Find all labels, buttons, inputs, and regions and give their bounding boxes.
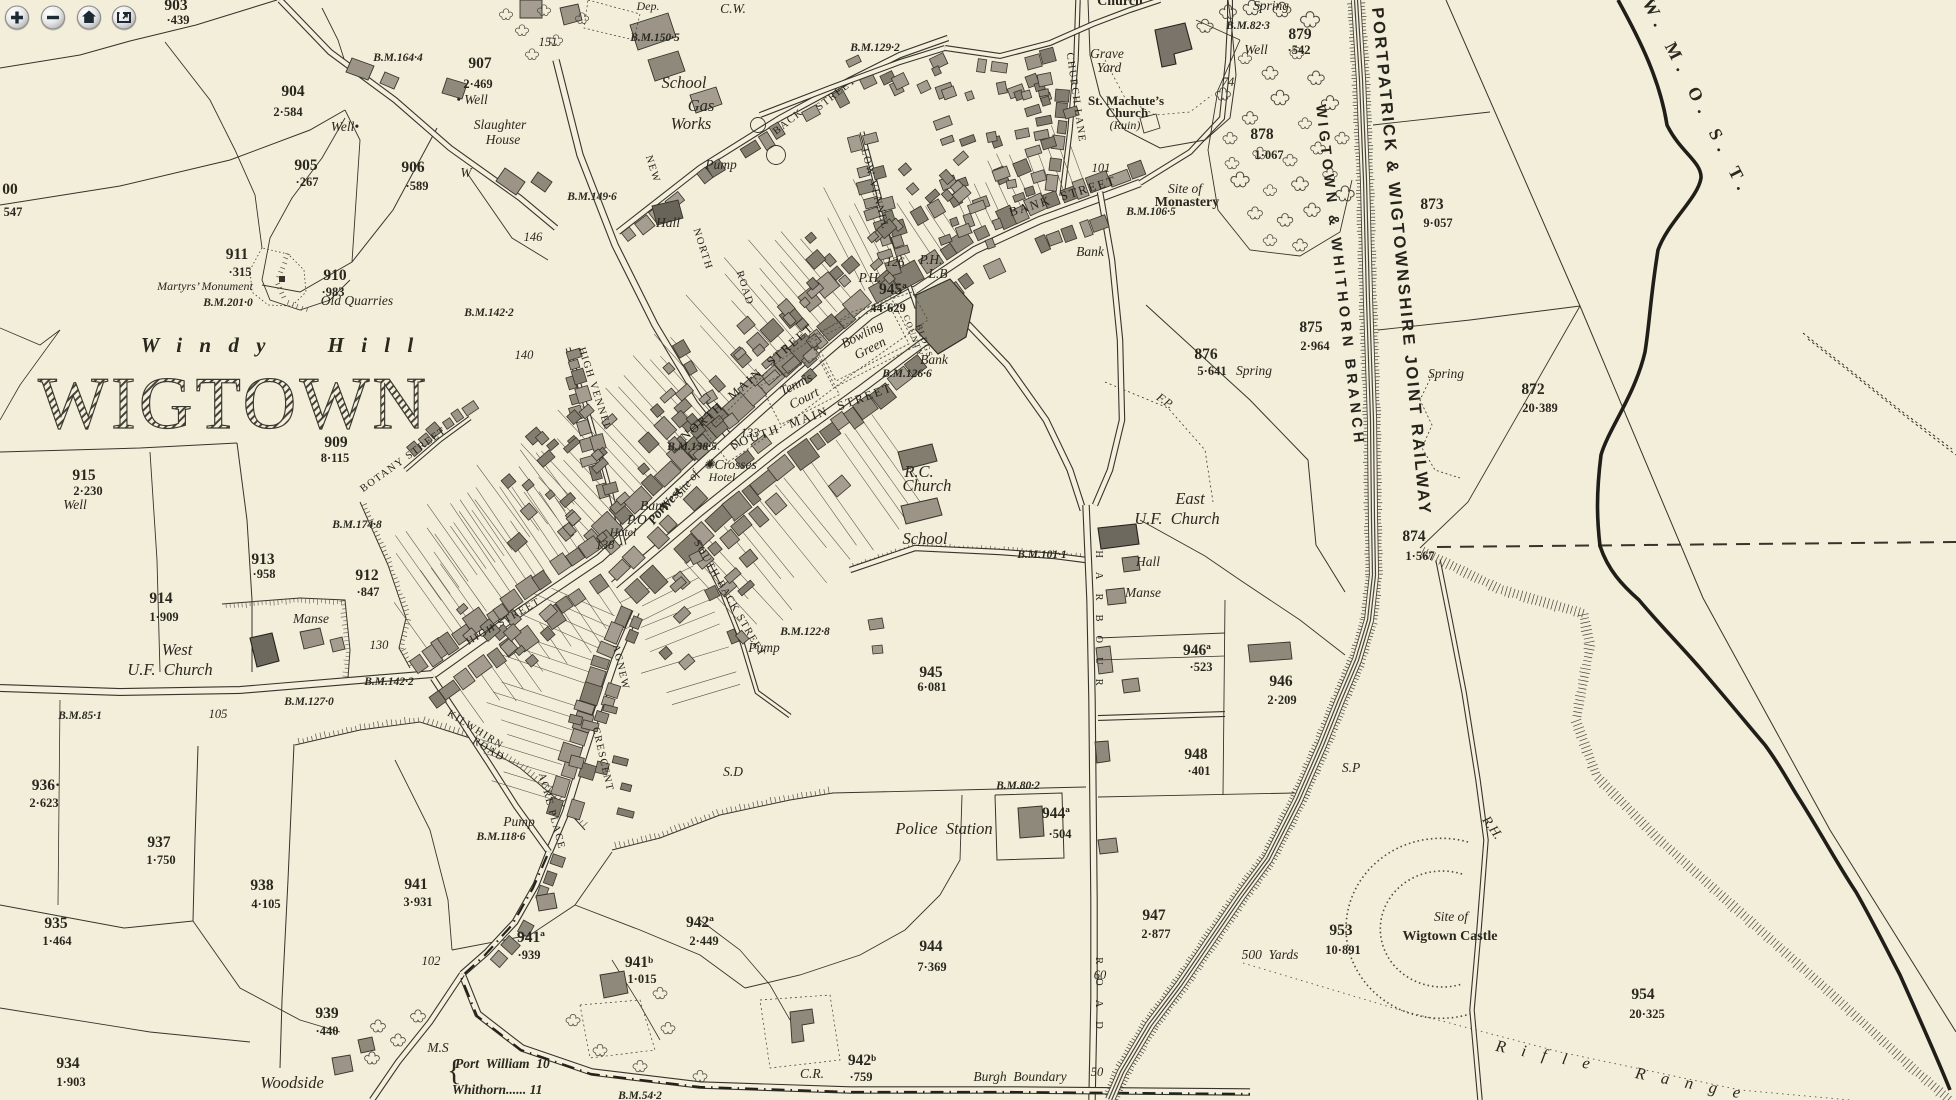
svg-text:W: W — [460, 165, 473, 180]
svg-text:{: { — [447, 1054, 461, 1087]
svg-text:1·903: 1·903 — [56, 1075, 85, 1089]
svg-text:·315: ·315 — [229, 265, 252, 279]
svg-text:944: 944 — [919, 938, 943, 955]
svg-text:1·067: 1·067 — [1254, 148, 1283, 162]
svg-text:934: 934 — [56, 1055, 80, 1072]
svg-text:School: School — [662, 73, 707, 92]
svg-text:·439: ·439 — [167, 13, 190, 27]
svg-text:874: 874 — [1402, 528, 1426, 545]
svg-text:S.D: S.D — [723, 764, 743, 779]
svg-text:935: 935 — [44, 915, 68, 932]
svg-text:B.M.201·0: B.M.201·0 — [202, 297, 253, 309]
svg-text:B.M.174·8: B.M.174·8 — [331, 519, 382, 531]
svg-text:Whithorn...... 11: Whithorn...... 11 — [452, 1082, 542, 1097]
svg-text:2·449: 2·449 — [689, 934, 718, 948]
svg-text:939: 939 — [315, 1005, 339, 1022]
svg-text:Dep.: Dep. — [636, 0, 660, 13]
svg-text:904: 904 — [281, 83, 305, 100]
svg-text:Port William 10: Port William 10 — [455, 1056, 550, 1071]
svg-text:50: 50 — [1091, 1065, 1104, 1079]
svg-text:937: 937 — [147, 834, 171, 851]
svg-text:873: 873 — [1420, 196, 1444, 213]
svg-text:ROAD: ROAD — [1093, 957, 1104, 1043]
svg-text:B.M.138·5: B.M.138·5 — [666, 441, 717, 453]
svg-text:20·389: 20·389 — [1522, 401, 1557, 415]
svg-text:140: 140 — [515, 348, 535, 362]
svg-text:Gas: Gas — [688, 96, 715, 115]
svg-text:·440: ·440 — [316, 1024, 339, 1038]
svg-text:547: 547 — [4, 205, 23, 219]
svg-text:Manse: Manse — [1124, 585, 1161, 600]
svg-text:947: 947 — [1142, 907, 1166, 924]
svg-text:C.W.: C.W. — [720, 1, 746, 16]
svg-text:912: 912 — [355, 567, 379, 584]
svg-text:Wigtown Castle: Wigtown Castle — [1402, 929, 1497, 944]
svg-text:941: 941 — [404, 876, 427, 893]
svg-text:2·877: 2·877 — [1141, 927, 1170, 941]
svg-text:• Well: • Well — [456, 92, 488, 107]
svg-text:44·629: 44·629 — [870, 301, 905, 315]
svg-text:74: 74 — [1222, 75, 1235, 89]
svg-text:146: 146 — [524, 230, 544, 244]
svg-text:Yard: Yard — [1097, 60, 1122, 75]
svg-text:U.F. Church: U.F. Church — [1134, 509, 1219, 528]
svg-text:C.R.: C.R. — [800, 1066, 824, 1081]
svg-text:Martyrs’ Monument: Martyrs’ Monument — [156, 279, 253, 293]
svg-text:1·567: 1·567 — [1405, 549, 1434, 563]
svg-text:151: 151 — [539, 35, 558, 49]
svg-text:4·105: 4·105 — [251, 897, 280, 911]
svg-text:875: 875 — [1299, 319, 1323, 336]
svg-text:B.M.101·1: B.M.101·1 — [1016, 549, 1067, 561]
svg-text:7·369: 7·369 — [917, 960, 946, 974]
svg-text:10·891: 10·891 — [1325, 943, 1360, 957]
svg-text:2·623: 2·623 — [29, 796, 58, 810]
svg-text:B.M.85·1: B.M.85·1 — [57, 710, 102, 722]
svg-text:Manse: Manse — [292, 611, 329, 626]
svg-text:B.M.82·3: B.M.82·3 — [1225, 20, 1270, 32]
svg-text:·542: ·542 — [1288, 43, 1311, 57]
svg-text:138: 138 — [596, 538, 616, 552]
svg-text:·589: ·589 — [406, 179, 429, 193]
svg-text:P.H.: P.H. — [857, 270, 881, 285]
svg-text:907: 907 — [468, 55, 492, 72]
svg-text:941ª: 941ª — [517, 929, 545, 946]
svg-text:B.M.142·2: B.M.142·2 — [363, 676, 414, 688]
svg-text:East: East — [1174, 489, 1205, 508]
svg-text:Hotel: Hotel — [708, 470, 736, 484]
svg-text:B.M.129·2: B.M.129·2 — [849, 42, 900, 54]
svg-text:House: House — [485, 132, 521, 147]
svg-text:945: 945 — [919, 664, 943, 681]
svg-text:2·584: 2·584 — [273, 105, 303, 119]
svg-text:20·325: 20·325 — [1629, 1007, 1664, 1021]
svg-text:Grave: Grave — [1090, 46, 1124, 61]
svg-text:Site of: Site of — [1168, 181, 1204, 196]
svg-text:·523: ·523 — [1190, 660, 1213, 674]
svg-text:Spring: Spring — [1428, 366, 1464, 381]
svg-text:B.M.149·6: B.M.149·6 — [566, 191, 617, 203]
svg-text:914: 914 — [149, 590, 173, 607]
svg-text:B.M.142·2: B.M.142·2 — [463, 307, 514, 319]
svg-text:Spring: Spring — [1236, 363, 1272, 378]
svg-text:Pump: Pump — [704, 157, 737, 172]
svg-text:911: 911 — [226, 246, 248, 263]
svg-text:2·469: 2·469 — [463, 77, 492, 91]
svg-text:8·115: 8·115 — [321, 451, 349, 465]
svg-text:B.M.80·2: B.M.80·2 — [995, 780, 1040, 792]
svg-text:941ᵇ: 941ᵇ — [625, 954, 653, 971]
svg-text:948: 948 — [1184, 746, 1208, 763]
svg-text:872: 872 — [1521, 381, 1545, 398]
svg-text:L.B: L.B — [927, 266, 947, 281]
svg-text:9·057: 9·057 — [1423, 216, 1452, 230]
svg-text:Monastery: Monastery — [1155, 195, 1220, 210]
svg-text:876: 876 — [1194, 346, 1218, 363]
svg-text:Hall: Hall — [655, 215, 680, 230]
svg-text:W i n d y H i l l: W i n d y H i l l — [141, 333, 419, 357]
svg-text:·401: ·401 — [1188, 764, 1211, 778]
svg-text:Works: Works — [671, 114, 712, 133]
svg-text:1·909: 1·909 — [149, 610, 178, 624]
svg-text:2·230: 2·230 — [73, 484, 102, 498]
svg-text:B.M.126·6: B.M.126·6 — [881, 368, 932, 380]
svg-text:1·750: 1·750 — [146, 853, 175, 867]
svg-text:Church: Church — [903, 476, 952, 495]
svg-text:Well: Well — [63, 497, 87, 512]
svg-text:130: 130 — [370, 638, 390, 652]
svg-text:Well: Well — [1244, 42, 1268, 57]
svg-text:946ª: 946ª — [1183, 642, 1211, 659]
svg-text:903: 903 — [164, 0, 188, 14]
svg-text:105: 105 — [209, 707, 228, 721]
svg-text:905: 905 — [294, 157, 318, 174]
svg-text:S.P: S.P — [1342, 760, 1360, 775]
svg-text:Burgh Boundary: Burgh Boundary — [973, 1069, 1066, 1084]
svg-text:500 Yards: 500 Yards — [1242, 947, 1299, 962]
svg-text:954: 954 — [1631, 986, 1655, 1003]
svg-text:953: 953 — [1329, 922, 1353, 939]
svg-text:1·015: 1·015 — [627, 972, 656, 986]
svg-text:School: School — [903, 529, 948, 548]
svg-text:Slaughter: Slaughter — [474, 117, 527, 132]
svg-text:1·464: 1·464 — [42, 934, 72, 948]
svg-text:U.F. Church: U.F. Church — [127, 660, 212, 679]
svg-text:B.M.164·4: B.M.164·4 — [372, 52, 423, 64]
svg-text:101: 101 — [1092, 161, 1111, 175]
svg-text:·759: ·759 — [850, 1070, 873, 1084]
svg-text:Site of: Site of — [1434, 909, 1470, 924]
svg-text:HARBOUR: HARBOUR — [1093, 550, 1104, 699]
svg-text:913: 913 — [251, 551, 275, 568]
svg-text:Police Station: Police Station — [894, 819, 992, 838]
svg-text:·958: ·958 — [253, 567, 276, 581]
svg-text:2·209: 2·209 — [1267, 693, 1296, 707]
svg-text:879: 879 — [1288, 26, 1312, 43]
svg-text:102: 102 — [422, 954, 441, 968]
svg-text:915: 915 — [72, 467, 96, 484]
svg-text:B.M.122·8: B.M.122·8 — [779, 626, 830, 638]
svg-text:(Ruin): (Ruin) — [1110, 118, 1141, 132]
svg-text:906: 906 — [401, 159, 425, 176]
svg-text:3·931: 3·931 — [403, 895, 432, 909]
svg-text:944ª: 944ª — [1042, 805, 1070, 822]
svg-text:Woodside: Woodside — [260, 1073, 324, 1092]
svg-text:West: West — [162, 640, 193, 659]
svg-text:B.M.127·0: B.M.127·0 — [283, 696, 334, 708]
svg-text:938: 938 — [250, 877, 274, 894]
svg-text:Pump: Pump — [502, 814, 535, 829]
svg-text:942ᵇ: 942ᵇ — [848, 1052, 876, 1069]
svg-text:·847: ·847 — [357, 585, 380, 599]
svg-text:936·: 936· — [32, 777, 60, 794]
svg-text:6·081: 6·081 — [917, 680, 946, 694]
svg-text:126: 126 — [886, 255, 906, 269]
svg-text:00: 00 — [2, 181, 18, 198]
svg-text:Well•: Well• — [331, 119, 359, 134]
svg-text:·504: ·504 — [1049, 827, 1073, 841]
svg-text:942ª: 942ª — [686, 914, 714, 931]
svg-text:946: 946 — [1269, 673, 1293, 690]
svg-text:Hotel: Hotel — [609, 525, 637, 539]
svg-text:B.M.150·5: B.M.150·5 — [629, 32, 680, 44]
svg-text:M.S: M.S — [426, 1040, 449, 1055]
svg-text:B.M.54·2: B.M.54·2 — [617, 1090, 662, 1100]
svg-text:B.M.118·6: B.M.118·6 — [476, 831, 526, 843]
svg-text:945ª: 945ª — [879, 281, 907, 298]
svg-text:910: 910 — [323, 267, 347, 284]
svg-text:P.H.: P.H. — [918, 252, 942, 267]
svg-text:2·964: 2·964 — [1300, 339, 1330, 353]
svg-text:WIGTOWN: WIGTOWN — [38, 363, 434, 445]
svg-text:·939: ·939 — [518, 948, 541, 962]
svg-text:Old Quarries: Old Quarries — [321, 293, 393, 308]
svg-text:5·641: 5·641 — [1197, 364, 1226, 378]
svg-text:·267: ·267 — [296, 175, 319, 189]
svg-text:Spring: Spring — [1253, 0, 1289, 13]
svg-text:Bank: Bank — [1076, 244, 1105, 259]
svg-text:878: 878 — [1250, 126, 1274, 143]
svg-text:Hall: Hall — [1135, 554, 1160, 569]
